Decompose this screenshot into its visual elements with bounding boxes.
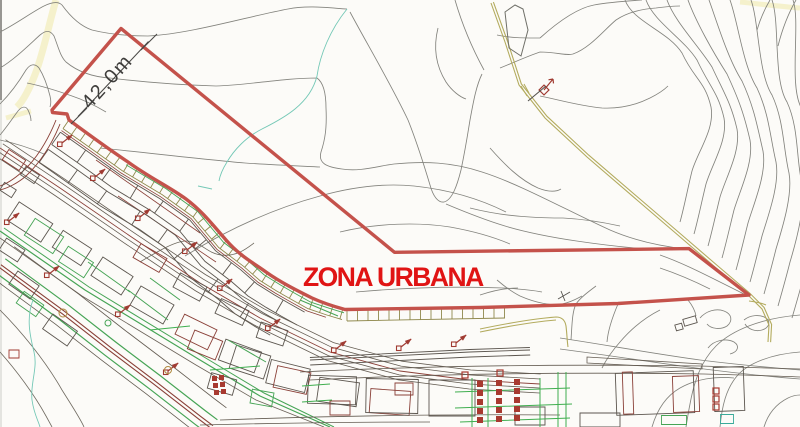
svg-text:ZONA URBANA: ZONA URBANA [303,262,484,292]
